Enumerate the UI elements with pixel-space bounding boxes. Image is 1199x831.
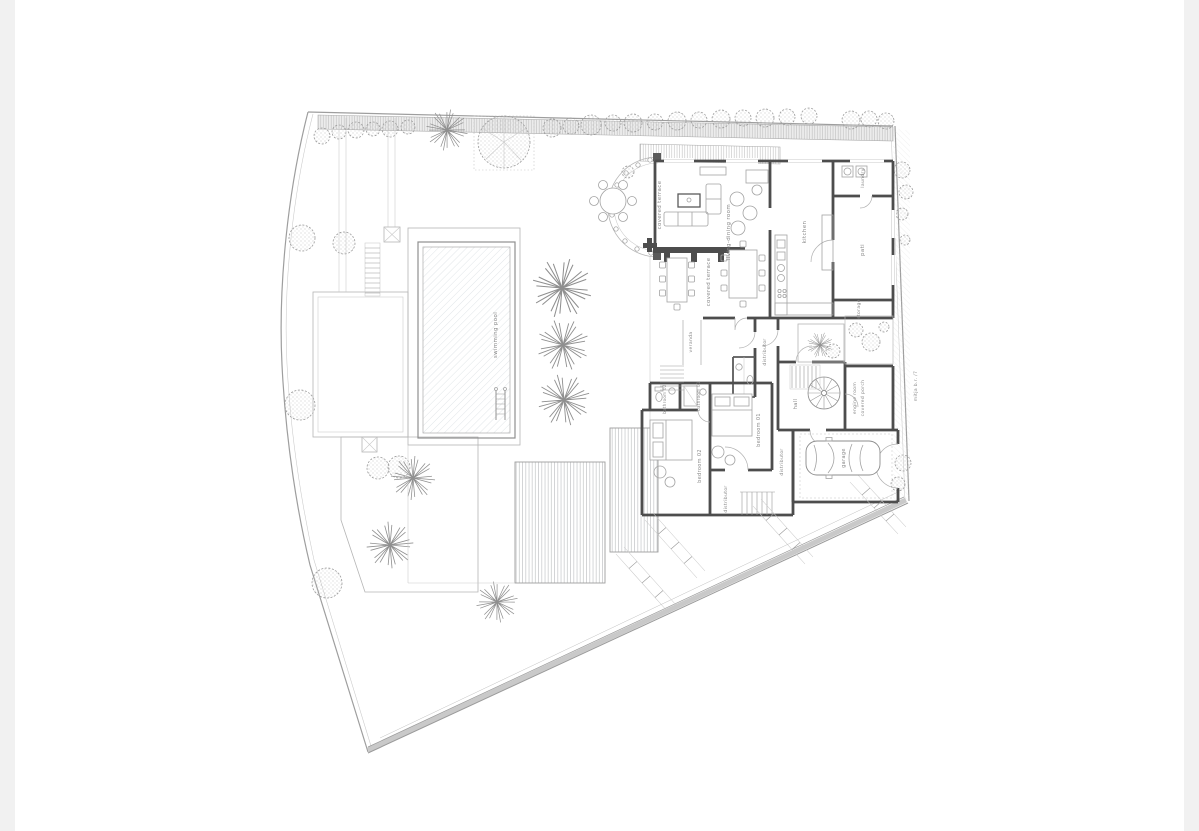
label-living-dining-room: living-dining room	[726, 204, 732, 260]
label-veranda: veranda	[688, 332, 694, 353]
pergola-post	[362, 437, 377, 452]
pergola-post	[384, 227, 400, 242]
site-plan-drawing: swimming pool	[0, 0, 1199, 831]
garden-stair	[365, 243, 380, 296]
plot-boundary	[281, 112, 909, 753]
label-covered-porch: covered porch	[860, 380, 866, 417]
label-boundary-note: mitja b.r. /7	[913, 371, 919, 401]
bedroom-01-furniture	[712, 394, 752, 465]
swimming-pool: swimming pool	[408, 228, 520, 445]
lower-distributor-steps	[740, 492, 775, 515]
label-covered-terrace-upper: covered terrace	[657, 180, 663, 229]
label-hall: hall	[793, 399, 799, 409]
label-bedroom-01: bedroom 01	[756, 413, 762, 447]
label-distributor-bedrooms: distributor	[779, 448, 785, 475]
living-room-furniture	[664, 167, 768, 235]
right-planting-strip	[893, 128, 910, 501]
label-engine-room: engine room	[852, 382, 858, 414]
label-bathroom-02: bathroom 02	[662, 384, 667, 414]
label-covered-terrace-lower: covered terrace	[706, 257, 712, 306]
label-distributor-main: distributor	[762, 338, 768, 365]
bedroom-02-furniture	[650, 420, 692, 487]
label-laundry: laundry	[860, 168, 866, 188]
label-pati: pati	[860, 244, 866, 256]
label-swimming-pool: swimming pool	[493, 312, 499, 358]
garden-stair-run	[616, 547, 676, 612]
spiral-staircase	[808, 377, 840, 409]
label-garage: garage	[841, 448, 847, 468]
label-storage: storage	[856, 299, 862, 319]
label-kitchen: kitchen	[802, 220, 808, 243]
label-bathroom-01: bathroom 01	[696, 381, 701, 411]
label-distributor-lower: distributor	[723, 485, 729, 512]
label-bedroom-02: bedroom 02	[697, 449, 703, 483]
